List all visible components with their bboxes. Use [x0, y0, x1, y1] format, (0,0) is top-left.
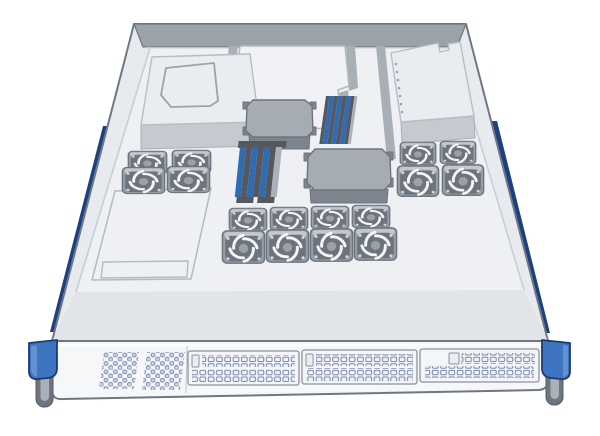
fan: [354, 228, 396, 260]
fan: [440, 141, 476, 164]
fan: [442, 165, 483, 196]
drive-bay-1: [188, 351, 299, 385]
rear-wall: [134, 24, 466, 47]
heatsink-2: [304, 149, 393, 203]
fan: [122, 167, 164, 193]
heatsink-1-top: [246, 100, 313, 137]
memory-bank-1: [319, 96, 357, 144]
psu-right-top: [391, 42, 474, 122]
fan: [352, 205, 390, 228]
vent-patch-2: [142, 352, 185, 390]
fan: [311, 206, 349, 229]
rack-ear-right: [542, 340, 570, 405]
heatsink-2-side: [310, 189, 388, 203]
bay-1-latch: [192, 355, 199, 367]
ear-right-highlight: [563, 345, 568, 377]
fan: [310, 229, 352, 261]
memory-bank-2-cap: [238, 141, 287, 148]
fan: [266, 230, 308, 262]
fan: [167, 166, 209, 192]
front-deck-strip: [52, 290, 548, 341]
drive-bay-2: [302, 350, 417, 384]
fan: [270, 207, 308, 230]
power-supply-right: [391, 42, 475, 144]
bay-2-latch: [306, 354, 313, 366]
fan: [397, 166, 438, 197]
front-panel: [52, 341, 548, 399]
fan: [400, 142, 436, 165]
ear-left-highlight: [31, 346, 37, 378]
bay-3-latch: [449, 353, 459, 364]
fan: [222, 231, 264, 263]
rack-ear-left: [29, 340, 57, 407]
server-illustration: [0, 0, 600, 436]
vent-patch-1: [99, 352, 139, 389]
power-supply-left: [141, 54, 259, 149]
drive-bay-3: [420, 349, 539, 382]
heatsink-2-top: [307, 149, 391, 190]
fan: [229, 208, 267, 231]
